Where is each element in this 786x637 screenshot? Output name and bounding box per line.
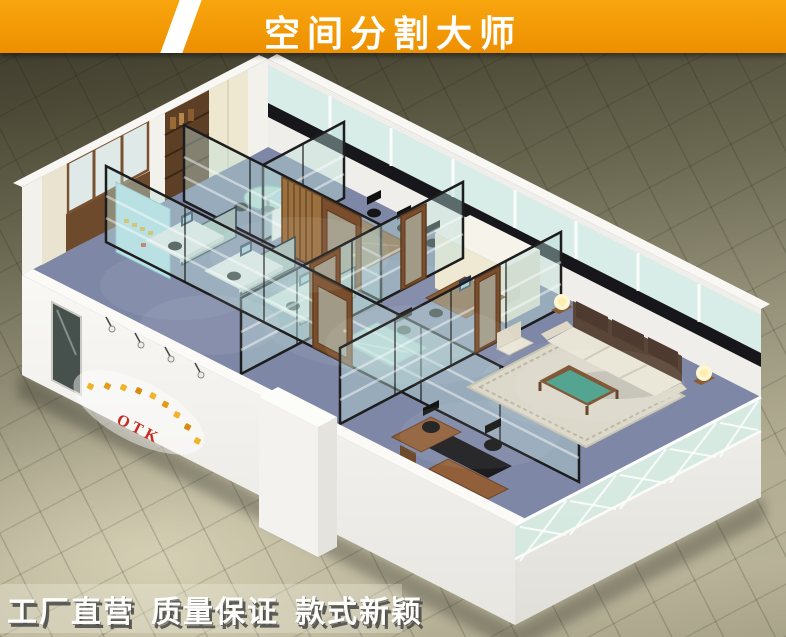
slogan-factory-direct: 工厂直营 bbox=[7, 587, 135, 631]
slogan-new-styles: 款式新颖 bbox=[295, 587, 423, 631]
page-title: 空间分割大师 bbox=[0, 5, 786, 57]
office-render: OTK bbox=[0, 0, 786, 637]
slogan-bar: 工厂直营 质量保证 款式新颖 bbox=[0, 584, 402, 633]
promo-image: 空间分割大师 bbox=[0, 0, 786, 637]
title-banner: 空间分割大师 bbox=[0, 0, 786, 53]
slogan-quality-guarantee: 质量保证 bbox=[151, 587, 279, 631]
wall-pillar bbox=[259, 387, 337, 557]
wood-door bbox=[401, 204, 426, 290]
